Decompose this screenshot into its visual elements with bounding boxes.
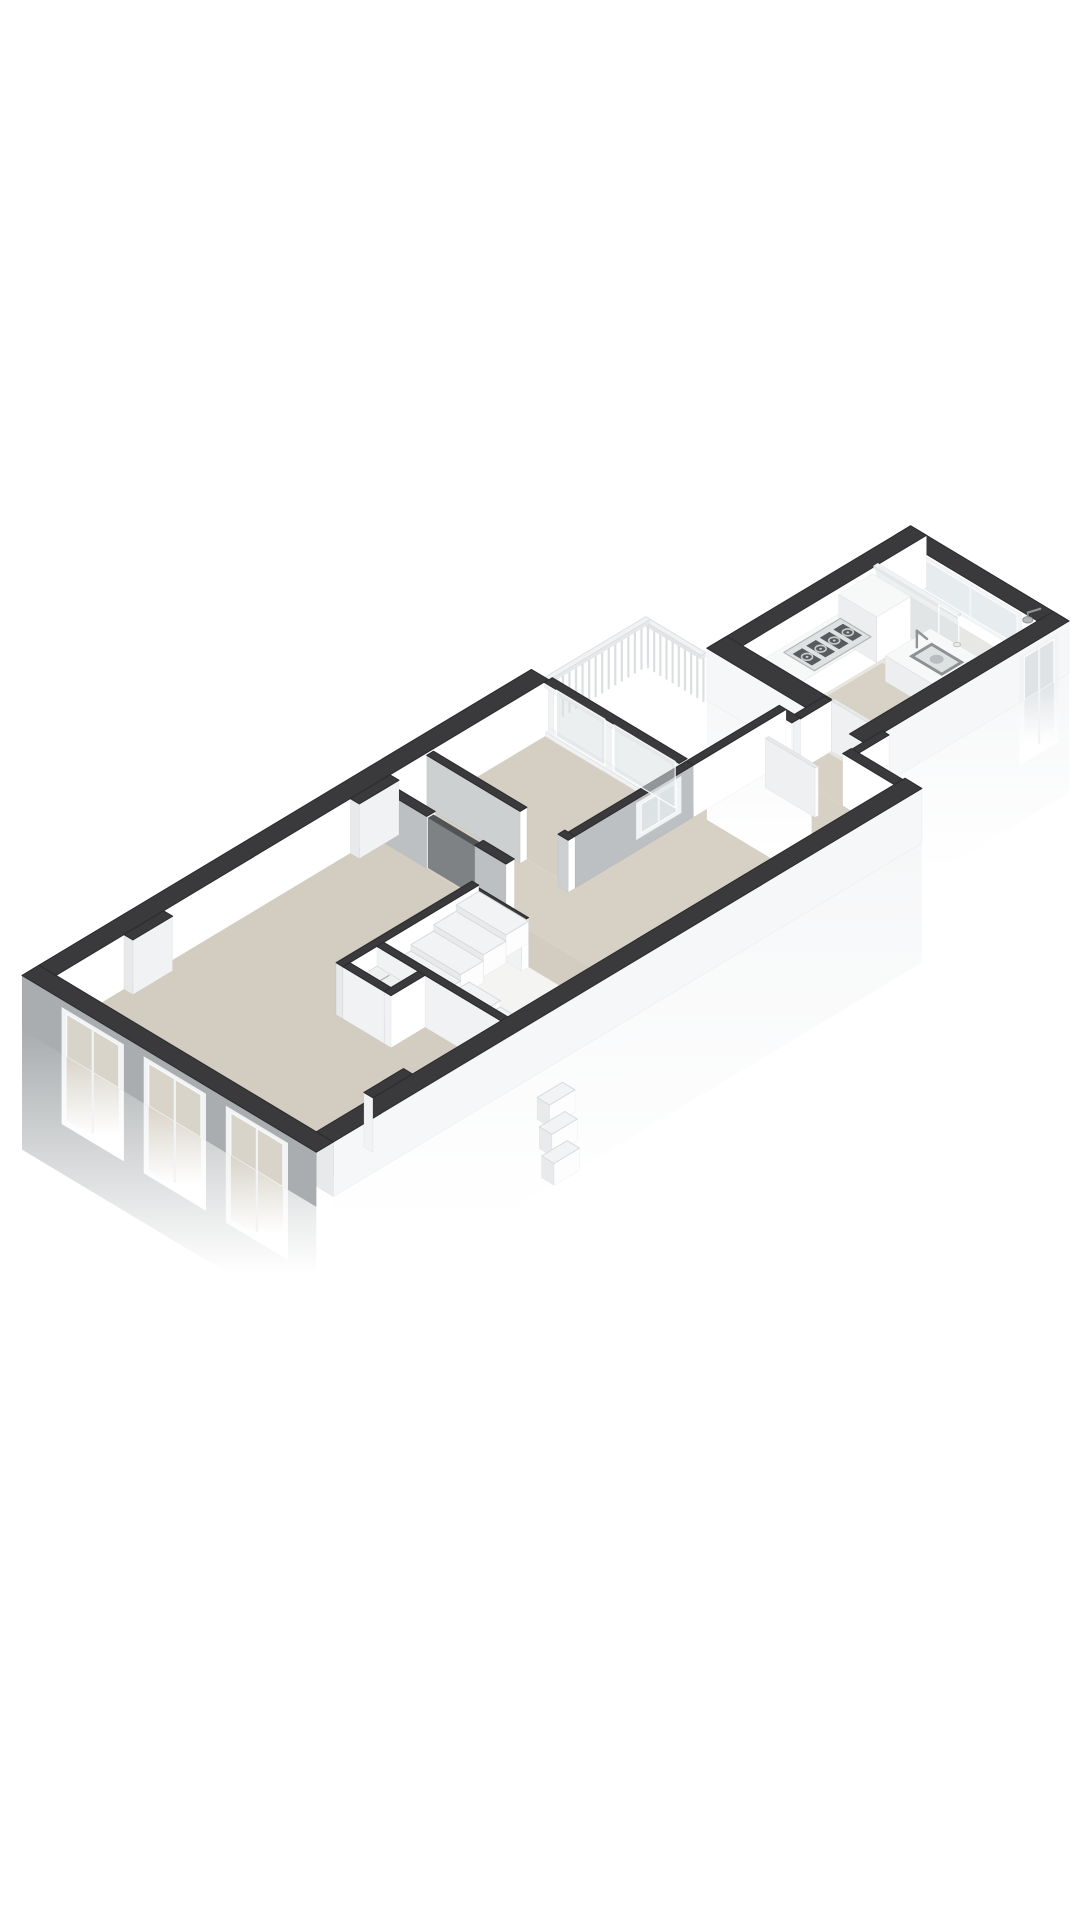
floorplan-3d-rendering	[0, 0, 1080, 1920]
floorplan-page	[0, 0, 1080, 1920]
bedroom-wall-sw-b	[558, 830, 575, 892]
terrace-railing-ne	[646, 619, 706, 700]
